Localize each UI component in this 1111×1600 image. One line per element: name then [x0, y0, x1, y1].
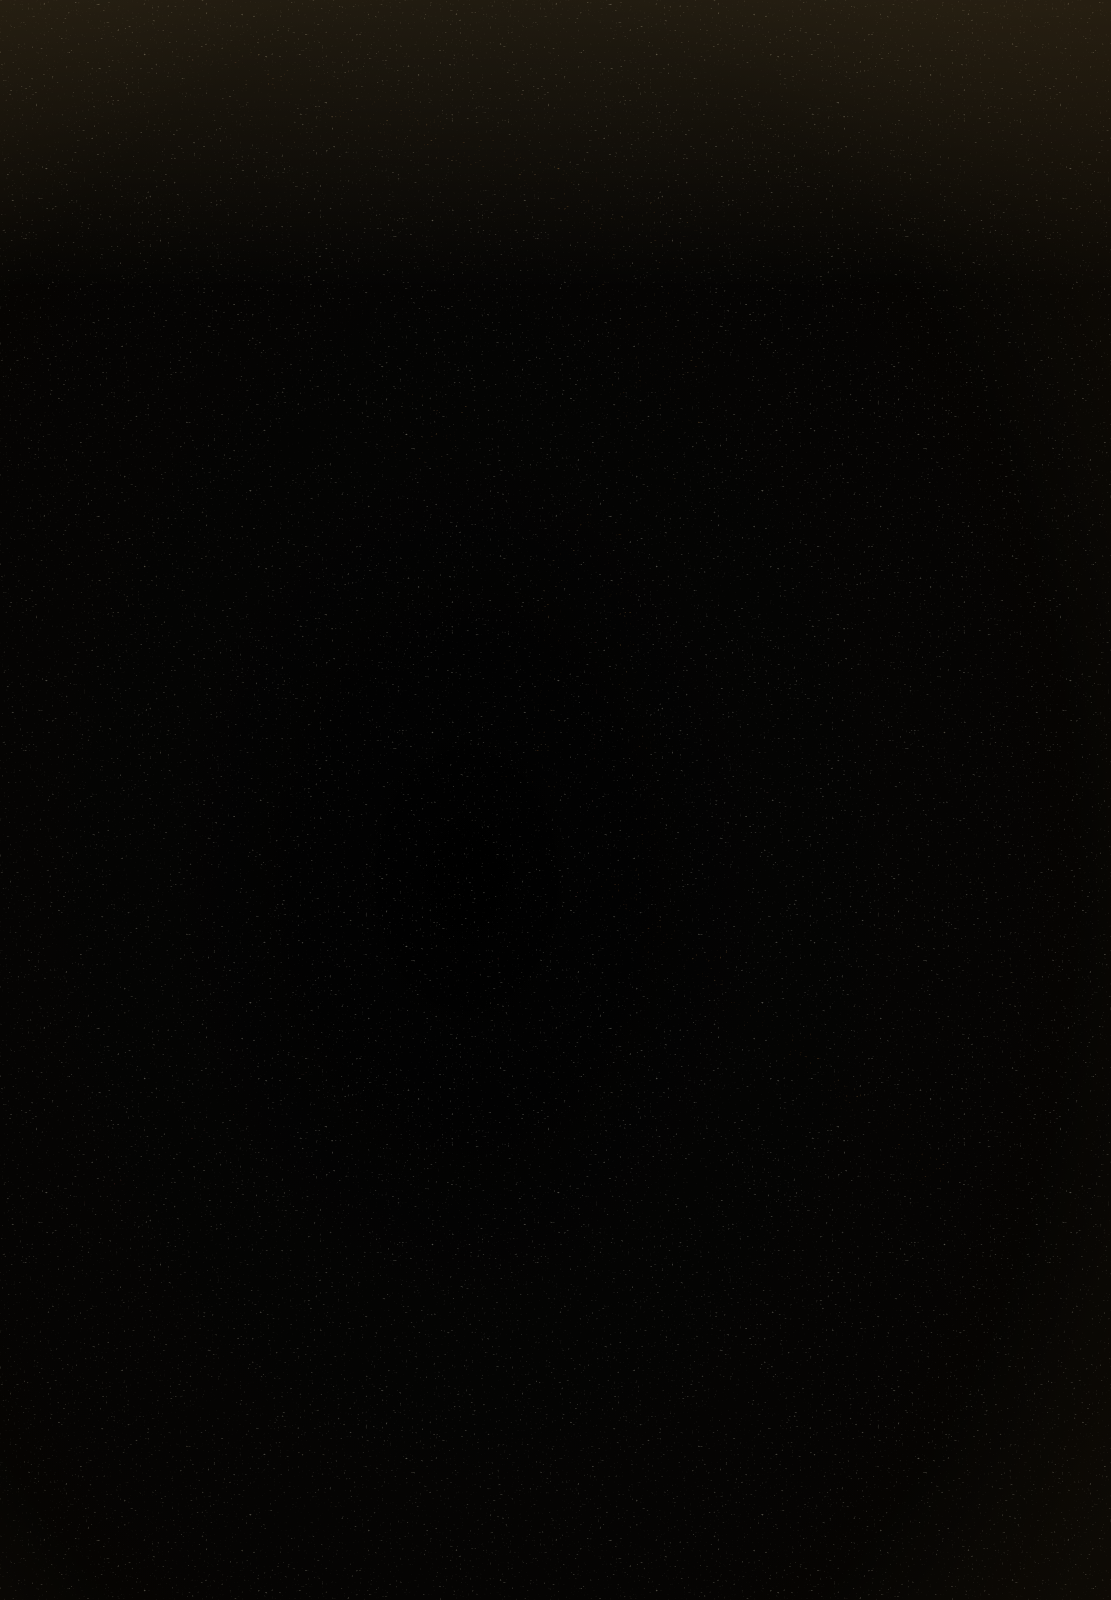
scene-svg [0, 0, 1111, 1600]
architectural-model-photograph [0, 0, 1111, 1600]
vignette-overlay [0, 0, 1111, 1600]
